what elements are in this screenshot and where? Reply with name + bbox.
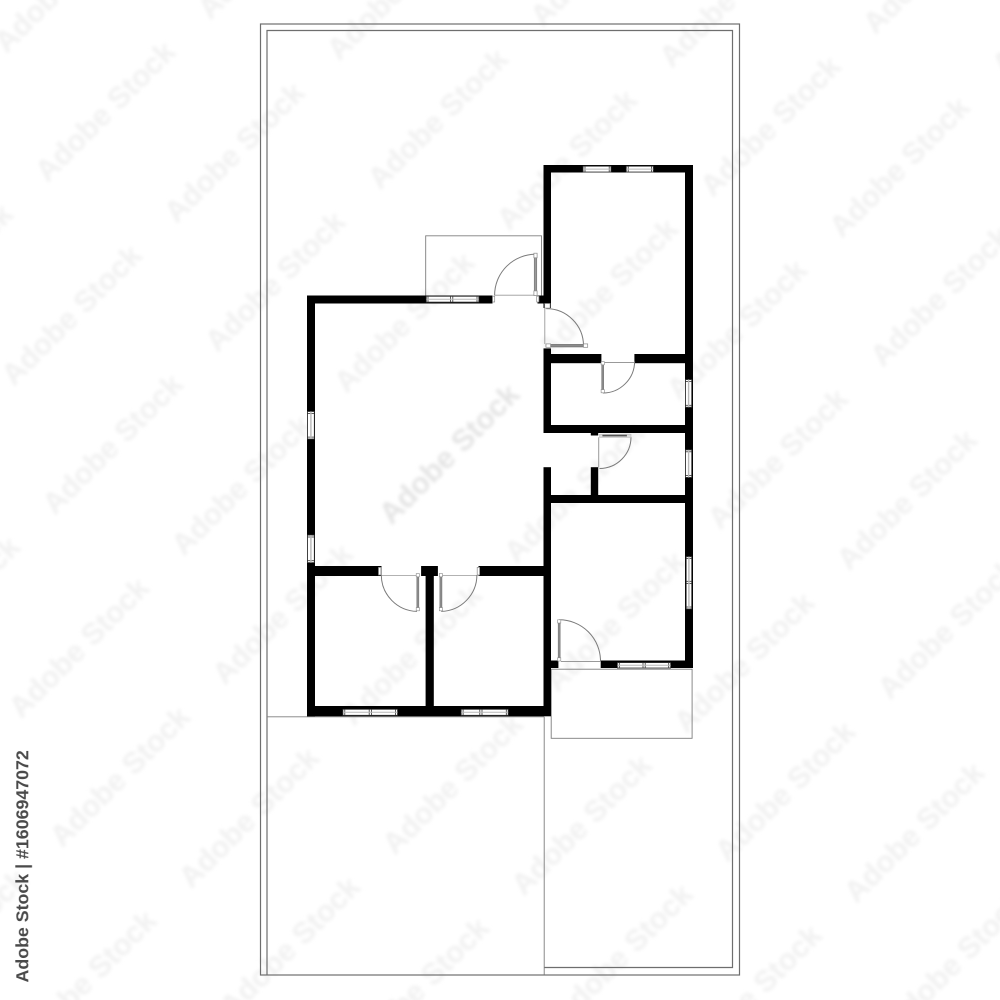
svg-text:Adobe Stock | #1606947072: Adobe Stock | #1606947072 [12, 750, 32, 982]
